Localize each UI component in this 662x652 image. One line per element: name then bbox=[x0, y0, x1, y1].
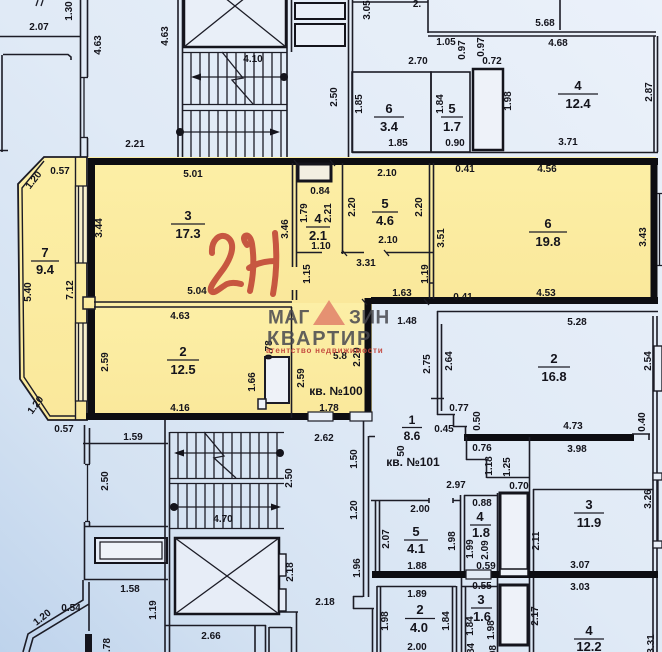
svg-text:4.1: 4.1 bbox=[407, 541, 425, 556]
svg-text:МАГ: МАГ bbox=[268, 308, 310, 329]
svg-text:4: 4 bbox=[476, 509, 484, 524]
svg-text:1.15: 1.15 bbox=[302, 264, 313, 284]
svg-text:1.8: 1.8 bbox=[472, 525, 490, 540]
svg-text:3.44: 3.44 bbox=[94, 218, 105, 238]
svg-text:4.16: 4.16 bbox=[170, 403, 190, 414]
svg-text:4.73: 4.73 bbox=[563, 421, 583, 432]
svg-text:1.63: 1.63 bbox=[392, 288, 412, 299]
svg-text:1.78: 1.78 bbox=[319, 403, 339, 414]
svg-text:1.20: 1.20 bbox=[349, 500, 360, 520]
svg-text:1.85: 1.85 bbox=[388, 138, 408, 149]
svg-text:7: 7 bbox=[41, 245, 48, 260]
svg-text:1.98: 1.98 bbox=[486, 620, 497, 640]
svg-text:1.79: 1.79 bbox=[299, 203, 310, 223]
svg-text:2: 2 bbox=[416, 602, 423, 617]
svg-text:1.19: 1.19 bbox=[420, 264, 431, 284]
svg-text:1.30: 1.30 bbox=[64, 1, 75, 21]
svg-text:2.66: 2.66 bbox=[201, 631, 221, 642]
svg-text:9.4: 9.4 bbox=[36, 262, 55, 277]
svg-text:1.19: 1.19 bbox=[148, 600, 159, 620]
svg-text:2.09: 2.09 bbox=[480, 540, 491, 560]
svg-text:1.7: 1.7 bbox=[443, 119, 461, 134]
svg-text:1.05: 1.05 bbox=[436, 37, 456, 48]
svg-text:4.53: 4.53 bbox=[536, 288, 556, 299]
svg-text:.98: .98 bbox=[488, 645, 499, 652]
svg-text:3.26: 3.26 bbox=[643, 489, 654, 509]
svg-text:0.57: 0.57 bbox=[54, 424, 74, 435]
svg-text:1.88: 1.88 bbox=[407, 561, 427, 572]
svg-text:11.9: 11.9 bbox=[577, 515, 602, 530]
svg-text:3.4: 3.4 bbox=[380, 119, 399, 134]
svg-text:1.50: 1.50 bbox=[349, 449, 360, 469]
svg-text:4.63: 4.63 bbox=[170, 311, 190, 322]
svg-text:0.77: 0.77 bbox=[449, 403, 469, 414]
svg-text:кв. №100: кв. №100 bbox=[309, 384, 363, 398]
svg-text:3.43: 3.43 bbox=[638, 227, 649, 247]
svg-text:.78: .78 bbox=[102, 638, 113, 652]
svg-text:1.84: 1.84 bbox=[465, 616, 476, 636]
svg-text:4.70: 4.70 bbox=[213, 514, 233, 525]
svg-text:2.21: 2.21 bbox=[323, 203, 334, 223]
svg-text:2.: 2. bbox=[413, 0, 422, 10]
svg-text:2.64: 2.64 bbox=[444, 351, 455, 371]
svg-text:4.56: 4.56 bbox=[537, 164, 557, 175]
svg-text:2.17: 2.17 bbox=[530, 606, 541, 626]
svg-text:0.76: 0.76 bbox=[472, 443, 492, 454]
svg-text:2.00: 2.00 bbox=[410, 504, 430, 515]
svg-text:3.98: 3.98 bbox=[567, 444, 587, 455]
svg-text:1.84: 1.84 bbox=[441, 611, 452, 631]
svg-text:4: 4 bbox=[574, 78, 582, 93]
svg-text:5.68: 5.68 bbox=[535, 18, 555, 29]
svg-text:16.8: 16.8 bbox=[541, 369, 566, 384]
svg-text:4.63: 4.63 bbox=[93, 35, 104, 55]
svg-text:1.85: 1.85 bbox=[354, 94, 365, 114]
svg-text:3: 3 bbox=[184, 208, 191, 223]
svg-text:0.88: 0.88 bbox=[472, 498, 492, 509]
svg-text:1.10: 1.10 bbox=[311, 241, 331, 252]
svg-text:3.31: 3.31 bbox=[356, 258, 376, 269]
svg-text:2.10: 2.10 bbox=[378, 235, 398, 246]
svg-text:2.21: 2.21 bbox=[125, 139, 145, 150]
svg-text:12.4: 12.4 bbox=[565, 96, 591, 111]
svg-text:5: 5 bbox=[448, 101, 455, 116]
svg-text:.84: .84 bbox=[466, 643, 477, 652]
svg-text:1.66: 1.66 bbox=[247, 372, 258, 392]
svg-text:7.12: 7.12 bbox=[65, 280, 76, 300]
svg-text:1.25: 1.25 bbox=[502, 457, 513, 477]
svg-text:0.84: 0.84 bbox=[310, 186, 330, 197]
svg-text:19.8: 19.8 bbox=[535, 234, 560, 249]
svg-text:3.07: 3.07 bbox=[570, 560, 590, 571]
svg-text:2.10: 2.10 bbox=[377, 168, 397, 179]
svg-text:3.51: 3.51 bbox=[436, 228, 447, 248]
svg-text:4.10: 4.10 bbox=[243, 54, 263, 65]
svg-text:2.97: 2.97 bbox=[446, 480, 466, 491]
svg-text:2.62: 2.62 bbox=[314, 433, 334, 444]
svg-text:0.54: 0.54 bbox=[61, 603, 81, 614]
svg-text:50: 50 bbox=[396, 445, 407, 457]
svg-text:1.98: 1.98 bbox=[380, 611, 391, 631]
svg-text:2.59: 2.59 bbox=[296, 368, 307, 388]
svg-text:1: 1 bbox=[409, 413, 416, 427]
svg-text:2.70: 2.70 bbox=[408, 56, 428, 67]
svg-text:4: 4 bbox=[314, 211, 322, 226]
svg-text:0.40: 0.40 bbox=[637, 412, 648, 432]
svg-text:3.05: 3.05 bbox=[362, 0, 373, 20]
svg-text:2.11: 2.11 bbox=[531, 531, 542, 550]
svg-text:3.03: 3.03 bbox=[570, 582, 590, 593]
svg-text:3.71: 3.71 bbox=[558, 137, 578, 148]
svg-text:2.87: 2.87 bbox=[644, 82, 655, 102]
svg-text:1.99: 1.99 bbox=[465, 539, 476, 559]
svg-text:1.96: 1.96 bbox=[352, 558, 363, 578]
svg-text:0.57: 0.57 bbox=[50, 166, 70, 177]
svg-text:8.6: 8.6 bbox=[404, 429, 421, 443]
svg-text:ЗИН: ЗИН bbox=[349, 308, 390, 329]
svg-text:2.59: 2.59 bbox=[100, 352, 111, 372]
svg-text:0.50: 0.50 bbox=[472, 411, 483, 431]
svg-text:1.89: 1.89 bbox=[407, 589, 427, 600]
svg-text:2.18: 2.18 bbox=[315, 597, 335, 608]
svg-text:2: 2 bbox=[179, 344, 186, 359]
svg-text:12.2: 12.2 bbox=[576, 639, 601, 652]
svg-text:5.40: 5.40 bbox=[23, 282, 34, 302]
svg-text:3.46: 3.46 bbox=[280, 219, 291, 239]
svg-text:0.72: 0.72 bbox=[482, 56, 502, 67]
svg-text:6: 6 bbox=[544, 216, 551, 231]
svg-text:2.07: 2.07 bbox=[381, 529, 392, 549]
svg-text:0.90: 0.90 bbox=[445, 138, 465, 149]
svg-text:0.97: 0.97 bbox=[457, 40, 468, 60]
svg-text:4.68: 4.68 bbox=[548, 38, 568, 49]
svg-text:2.20: 2.20 bbox=[347, 197, 358, 217]
svg-text:2.50: 2.50 bbox=[329, 87, 340, 107]
svg-text:17.3: 17.3 bbox=[175, 226, 200, 241]
svg-text:3.31: 3.31 bbox=[646, 634, 657, 652]
svg-text:2.50: 2.50 bbox=[284, 468, 295, 488]
svg-text:0.41: 0.41 bbox=[453, 292, 473, 303]
svg-text:1.98: 1.98 bbox=[447, 531, 458, 551]
svg-text:2.20: 2.20 bbox=[414, 197, 425, 217]
svg-text:12.5: 12.5 bbox=[170, 362, 195, 377]
svg-text:2: 2 bbox=[550, 351, 557, 366]
svg-text:кв. №101: кв. №101 bbox=[386, 455, 440, 469]
svg-text:1.58: 1.58 bbox=[120, 584, 140, 595]
svg-text:4: 4 bbox=[585, 623, 593, 638]
svg-text:0.97: 0.97 bbox=[476, 37, 487, 57]
svg-text:1.48: 1.48 bbox=[397, 316, 417, 327]
svg-text:0.45: 0.45 bbox=[434, 424, 454, 435]
svg-text:0.55: 0.55 bbox=[472, 581, 492, 592]
svg-text:3: 3 bbox=[477, 592, 484, 607]
svg-text:1.84: 1.84 bbox=[435, 94, 446, 114]
svg-text:2.75: 2.75 bbox=[422, 354, 433, 374]
svg-text:агентство недвижимости: агентство недвижимости bbox=[266, 346, 383, 355]
svg-text:2.50: 2.50 bbox=[100, 471, 111, 491]
svg-text:2.00: 2.00 bbox=[407, 642, 427, 652]
svg-text:6: 6 bbox=[385, 101, 392, 116]
svg-text:2.18: 2.18 bbox=[285, 562, 296, 582]
svg-text:4.63: 4.63 bbox=[160, 26, 171, 46]
svg-text:1.98: 1.98 bbox=[503, 91, 514, 111]
svg-text:0.41: 0.41 bbox=[455, 164, 475, 175]
svg-text:4.0: 4.0 bbox=[410, 620, 428, 635]
svg-text:1.59: 1.59 bbox=[123, 432, 143, 443]
svg-text:3: 3 bbox=[585, 497, 592, 512]
svg-text:5.28: 5.28 bbox=[567, 317, 587, 328]
svg-text:5.01: 5.01 bbox=[183, 169, 203, 180]
svg-text:2.07: 2.07 bbox=[29, 22, 49, 33]
svg-text:4.6: 4.6 bbox=[376, 213, 394, 228]
svg-text:5: 5 bbox=[412, 524, 419, 539]
svg-text:5: 5 bbox=[381, 196, 388, 211]
svg-text:5.04: 5.04 bbox=[187, 286, 207, 297]
svg-text:0.70: 0.70 bbox=[509, 481, 529, 492]
